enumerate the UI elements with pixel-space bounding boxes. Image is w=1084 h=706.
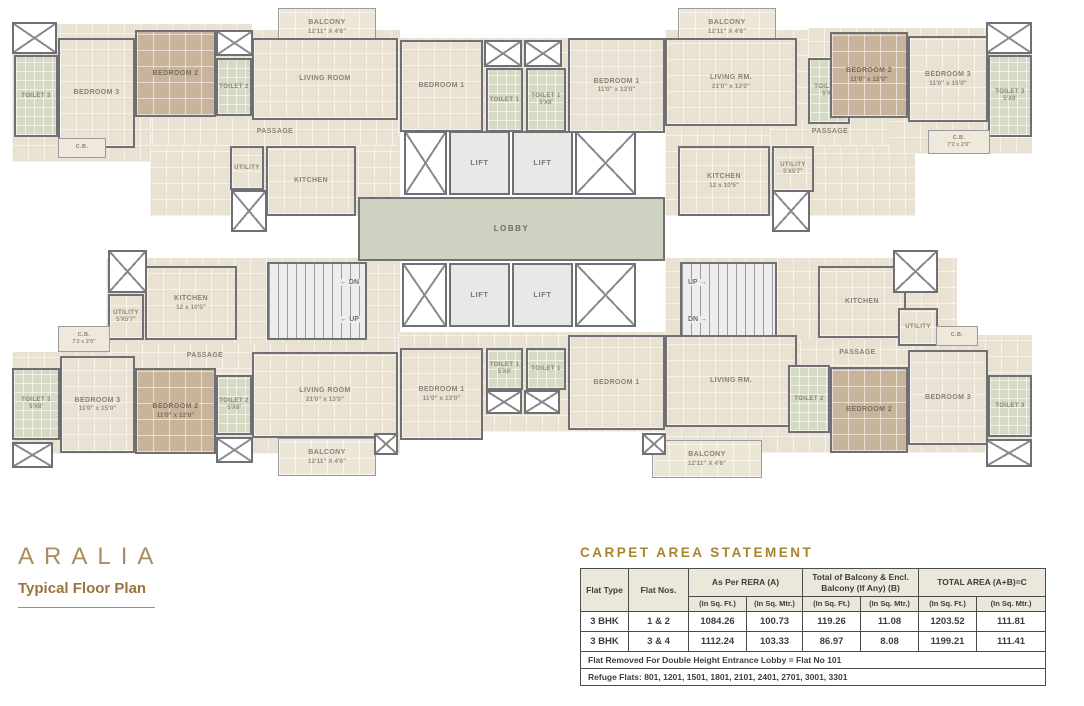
table-cell: 111.41 bbox=[977, 631, 1046, 651]
room-label: BEDROOM 3 bbox=[74, 88, 120, 97]
room-dims: 11'0" x 12'0" bbox=[157, 412, 195, 420]
subheader-cell: (In Sq. Mtr.) bbox=[977, 597, 1046, 611]
room-label: LIVING ROOM bbox=[299, 74, 350, 83]
room-label: BEDROOM 1 bbox=[594, 378, 640, 387]
room-label: BEDROOM 1 bbox=[594, 77, 640, 86]
table-cell: 3 & 4 bbox=[629, 631, 689, 651]
room-dims: 12 x 10'5" bbox=[176, 304, 206, 312]
balcony-bottom-left: BALCONY12'11" X 4'6" bbox=[278, 438, 376, 476]
toilet-1-top-b: TOILET 15'X8' bbox=[526, 68, 566, 132]
room-label: BEDROOM 1 bbox=[419, 385, 465, 394]
subheader-cell: (In Sq. Ft.) bbox=[689, 597, 747, 611]
staircase-left: ← DN← UP bbox=[267, 262, 367, 340]
shaft-bottom-left-1 bbox=[216, 437, 253, 463]
utility-top-right: UTILITY5'X5'7" bbox=[772, 146, 814, 192]
toilet-1-top-a: TOILET 1 bbox=[486, 68, 523, 132]
toilet-3-bottom-right: TOILET 3 bbox=[988, 375, 1032, 437]
room-label: C.B. bbox=[953, 135, 966, 142]
bedroom-1-bottom-right-wing: BEDROOM 1 bbox=[568, 335, 665, 430]
carpet-area-table: Flat Type Flat Nos. As Per RERA (A) Tota… bbox=[580, 568, 1046, 686]
shaft-corner-top-left bbox=[12, 22, 57, 54]
column-header-total-area: TOTAL AREA (A+B)=C bbox=[919, 569, 1046, 597]
shaft-top-left-1 bbox=[216, 30, 253, 56]
room-label: BEDROOM 2 bbox=[153, 69, 199, 78]
room-label: BEDROOM 3 bbox=[925, 393, 971, 402]
room-label: PASSAGE bbox=[187, 351, 224, 360]
room-dims: 5'X8' bbox=[29, 404, 43, 412]
room-dims: 5'X5'7" bbox=[783, 169, 803, 177]
utility-bottom-right: UTILITY bbox=[898, 308, 938, 346]
bedroom-3-top-left: BEDROOM 3 bbox=[58, 38, 135, 148]
bedroom-1-bottom-left-wing: BEDROOM 111'0" x 13'0" bbox=[400, 348, 483, 440]
room-label: LIVING RM. bbox=[710, 376, 752, 385]
room-label: UTILITY bbox=[234, 164, 259, 172]
room-label: LIVING RM. bbox=[710, 73, 752, 82]
room-label: BALCONY bbox=[688, 450, 725, 459]
room-label: KITCHEN bbox=[174, 294, 208, 303]
room-label: UTILITY bbox=[780, 161, 805, 169]
brand-divider bbox=[18, 607, 155, 608]
subheader-cell: (In Sq. Mtr.) bbox=[747, 597, 803, 611]
room-dims: 21'0" x 13'0" bbox=[712, 83, 750, 91]
room-label: C.B. bbox=[76, 144, 89, 151]
passage-top-left: PASSAGE bbox=[152, 118, 398, 146]
room-label: TOILET 1 bbox=[490, 361, 519, 369]
utility-bottom-left: UTILITY5'X5'7" bbox=[108, 294, 144, 340]
room-dims: 11'0" x 12'0" bbox=[850, 76, 888, 84]
living-room-top-left: LIVING ROOM bbox=[252, 38, 398, 120]
room-label: BEDROOM 2 bbox=[153, 402, 199, 411]
room-dims: 11'0" x 15'0" bbox=[929, 80, 967, 88]
table-cell: 86.97 bbox=[803, 631, 861, 651]
lift-bottom-2: LIFT bbox=[512, 263, 573, 327]
lift-bottom-1: LIFT bbox=[449, 263, 510, 327]
room-label: TOILET 1 bbox=[490, 96, 519, 104]
subheader-cell: (In Sq. Mtr.) bbox=[861, 597, 919, 611]
room-dims: 5'X8' bbox=[227, 405, 241, 413]
lift-top-2: LIFT bbox=[512, 131, 573, 195]
shaft-corner-bottom-right bbox=[986, 439, 1032, 467]
room-dims: 12'11" X 4'6" bbox=[688, 460, 727, 468]
room-label: TOILET 2 bbox=[219, 83, 248, 91]
brand-subtitle: Typical Floor Plan bbox=[18, 580, 163, 597]
living-room-bottom-left: LIVING ROOM21'0" x 13'0" bbox=[252, 352, 398, 438]
brand-block: ARALIA Typical Floor Plan bbox=[18, 543, 163, 608]
room-label: TOILET 3 bbox=[21, 92, 50, 100]
room-dims: 7'2 x 2'0" bbox=[72, 339, 96, 346]
shaft-corner-bottom-left bbox=[12, 442, 53, 468]
room-label: UTILITY bbox=[113, 309, 138, 317]
column-header-rera: As Per RERA (A) bbox=[689, 569, 803, 597]
shaft-kitchen-top-right bbox=[772, 190, 810, 232]
room-label: TOILET 1 bbox=[531, 365, 560, 373]
room-dims: 11'0" x 13'0" bbox=[423, 395, 461, 403]
shaft-top-center-1 bbox=[484, 40, 522, 67]
bedroom-3-bottom-right: BEDROOM 3 bbox=[908, 350, 988, 445]
table-cell: 3 BHK bbox=[581, 631, 629, 651]
lift-shaft-top-left bbox=[404, 131, 447, 195]
shaft-mid-left bbox=[108, 250, 147, 293]
living-rm-top-right: LIVING RM.21'0" x 13'0" bbox=[665, 38, 797, 126]
room-dims: 5'X8' bbox=[1003, 96, 1017, 104]
bedroom-2-top-left: BEDROOM 2 bbox=[135, 30, 216, 117]
shaft-mid-right bbox=[893, 250, 938, 293]
cb-bottom-right: C.B. bbox=[936, 326, 978, 346]
cb-bottom-left: C.B.7'2 x 2'0" bbox=[58, 326, 110, 352]
table-cell: 11.08 bbox=[861, 611, 919, 631]
room-label: BALCONY bbox=[708, 18, 745, 27]
bedroom-3-top-right: BEDROOM 311'0" x 15'0" bbox=[908, 36, 988, 122]
room-label: BEDROOM 3 bbox=[75, 396, 121, 405]
room-label: UTILITY bbox=[905, 323, 930, 331]
room-label: BEDROOM 2 bbox=[846, 66, 892, 75]
room-label: LOBBY bbox=[494, 224, 530, 235]
table-cell: 1112.24 bbox=[689, 631, 747, 651]
room-dims: 7'2 x 2'0" bbox=[947, 142, 971, 149]
room-label: TOILET 3 bbox=[995, 88, 1024, 96]
room-label: BEDROOM 1 bbox=[419, 81, 465, 90]
table-note: Flat Removed For Double Height Entrance … bbox=[581, 651, 1046, 668]
table-row: 3 BHK3 & 41112.24103.3386.978.081199.211… bbox=[581, 631, 1046, 651]
toilet-3-top-right: TOILET 35'X8' bbox=[988, 55, 1032, 137]
room-label: LIFT bbox=[533, 290, 551, 300]
table-note: Refuge Flats: 801, 1201, 1501, 1801, 210… bbox=[581, 668, 1046, 685]
table-cell: 3 BHK bbox=[581, 611, 629, 631]
bedroom-2-bottom-left: BEDROOM 211'0" x 12'0" bbox=[135, 368, 216, 454]
brand-logo: ARALIA bbox=[18, 543, 163, 571]
toilet-3-bottom-left: TOILET 35'X8' bbox=[12, 368, 60, 440]
toilet-2-bottom-left: TOILET 25'X8' bbox=[216, 375, 252, 435]
room-label: PASSAGE bbox=[257, 127, 294, 136]
utility-top-left: UTILITY bbox=[230, 146, 264, 190]
table-cell: 1203.52 bbox=[919, 611, 977, 631]
shaft-bottom-center-4 bbox=[642, 433, 666, 455]
room-label: BALCONY bbox=[308, 448, 345, 457]
cb-top-right: C.B.7'2 x 2'0" bbox=[928, 130, 990, 154]
floor-plan-page: PASSAGEPASSAGEPASSAGEPASSAGEBALCONY12'11… bbox=[0, 0, 1084, 706]
lift-shaft-top-right bbox=[575, 131, 636, 195]
column-header-flat-nos: Flat Nos. bbox=[629, 569, 689, 612]
room-label: C.B. bbox=[78, 332, 91, 339]
room-dims: 5'X8' bbox=[539, 100, 553, 108]
room-label: PASSAGE bbox=[839, 348, 876, 357]
room-label: LIVING ROOM bbox=[299, 386, 350, 395]
bedroom-2-bottom-right: BEDROOM 2 bbox=[830, 367, 908, 453]
room-label: LIFT bbox=[470, 290, 488, 300]
room-label: BEDROOM 3 bbox=[925, 70, 971, 79]
toilet-2-top-left: TOILET 2 bbox=[216, 58, 252, 116]
bedroom-1-top-left-wing: BEDROOM 1 bbox=[400, 40, 483, 132]
shaft-bottom-center-3 bbox=[374, 433, 398, 455]
room-dims: 12'11" X 4'6" bbox=[308, 458, 347, 466]
room-label: PASSAGE bbox=[812, 127, 849, 136]
room-label: TOILET 1 bbox=[531, 92, 560, 100]
room-dims: 11'0" x 15'0" bbox=[79, 405, 117, 413]
subheader-cell: (In Sq. Ft.) bbox=[919, 597, 977, 611]
table-body: 3 BHK1 & 21084.26100.73119.2611.081203.5… bbox=[581, 611, 1046, 685]
bedroom-1-top-right-wing: BEDROOM 111'0" x 13'0" bbox=[568, 38, 665, 133]
toilet-1-bottom-a: TOILET 15'X8' bbox=[486, 348, 523, 390]
table-cell: 8.08 bbox=[861, 631, 919, 651]
table-cell: 119.26 bbox=[803, 611, 861, 631]
subheader-cell: (In Sq. Ft.) bbox=[803, 597, 861, 611]
room-dims: 12'11" X 4'6" bbox=[308, 28, 347, 36]
table-row: 3 BHK1 & 21084.26100.73119.2611.081203.5… bbox=[581, 611, 1046, 631]
lift-shaft-bottom-left bbox=[402, 263, 447, 327]
table-cell: 103.33 bbox=[747, 631, 803, 651]
stair-direction-label: UP → bbox=[686, 279, 709, 286]
staircase-right: UP →DN → bbox=[680, 262, 777, 340]
lift-shaft-bottom-right bbox=[575, 263, 636, 327]
table-cell: 111.81 bbox=[977, 611, 1046, 631]
table-cell: 100.73 bbox=[747, 611, 803, 631]
floor-plan: PASSAGEPASSAGEPASSAGEPASSAGEBALCONY12'11… bbox=[0, 0, 1084, 525]
room-dims: 5'X5'7" bbox=[116, 317, 136, 325]
kitchen-top-right: KITCHEN12 x 10'5" bbox=[678, 146, 770, 216]
stair-direction-label: DN → bbox=[686, 316, 709, 323]
table-cell: 1 & 2 bbox=[629, 611, 689, 631]
table-cell: 1199.21 bbox=[919, 631, 977, 651]
column-header-balcony: Total of Balcony & Encl. Balcony (If Any… bbox=[803, 569, 919, 597]
toilet-1-bottom-b: TOILET 1 bbox=[526, 348, 566, 390]
room-label: C.B. bbox=[951, 332, 964, 339]
shaft-kitchen-top-left bbox=[231, 190, 267, 232]
lobby: LOBBY bbox=[358, 197, 665, 261]
room-label: BALCONY bbox=[308, 18, 345, 27]
room-label: TOILET 2 bbox=[219, 397, 248, 405]
stair-direction-label: ← DN bbox=[338, 279, 361, 286]
table-note-row: Flat Removed For Double Height Entrance … bbox=[581, 651, 1046, 668]
table-cell: 1084.26 bbox=[689, 611, 747, 631]
kitchen-bottom-left: KITCHEN12 x 10'5" bbox=[145, 266, 237, 340]
cb-top-left: C.B. bbox=[58, 138, 106, 158]
carpet-area-title: CARPET AREA STATEMENT bbox=[580, 545, 1050, 560]
room-label: TOILET 2 bbox=[794, 395, 823, 403]
bedroom-2-top-right: BEDROOM 211'0" x 12'0" bbox=[830, 32, 908, 118]
room-label: KITCHEN bbox=[845, 297, 879, 306]
kitchen-top-left: KITCHEN bbox=[266, 146, 356, 216]
column-header-flat-type: Flat Type bbox=[581, 569, 629, 612]
room-dims: 12'11" X 4'6" bbox=[708, 28, 747, 36]
toilet-3-top-left: TOILET 3 bbox=[14, 55, 58, 137]
room-label: LIFT bbox=[533, 158, 551, 168]
room-label: KITCHEN bbox=[294, 176, 328, 185]
living-rm-bottom-right: LIVING RM. bbox=[665, 335, 797, 427]
shaft-top-center-2 bbox=[524, 40, 562, 67]
room-dims: 5'X8' bbox=[498, 369, 512, 377]
table-note-row: Refuge Flats: 801, 1201, 1501, 1801, 210… bbox=[581, 668, 1046, 685]
lift-top-1: LIFT bbox=[449, 131, 510, 195]
room-dims: 11'0" x 13'0" bbox=[598, 86, 636, 94]
room-label: KITCHEN bbox=[707, 172, 741, 181]
room-dims: 21'0" x 13'0" bbox=[306, 396, 344, 404]
shaft-corner-top-right bbox=[986, 22, 1032, 54]
room-label: TOILET 3 bbox=[995, 402, 1024, 410]
bedroom-3-bottom-left: BEDROOM 311'0" x 15'0" bbox=[60, 356, 135, 453]
room-label: TOILET 3 bbox=[21, 396, 50, 404]
carpet-area-statement: CARPET AREA STATEMENT Flat Type Flat Nos… bbox=[580, 545, 1050, 686]
room-label: BEDROOM 2 bbox=[846, 405, 892, 414]
balcony-bottom-center: BALCONY12'11" X 4'6" bbox=[652, 440, 762, 478]
room-dims: 12 x 10'5" bbox=[709, 182, 739, 190]
stair-direction-label: ← UP bbox=[338, 316, 361, 323]
shaft-bottom-center-1 bbox=[486, 390, 522, 414]
shaft-bottom-center-2 bbox=[524, 390, 560, 414]
room-label: LIFT bbox=[470, 158, 488, 168]
toilet-2-bottom-right: TOILET 2 bbox=[788, 365, 830, 433]
